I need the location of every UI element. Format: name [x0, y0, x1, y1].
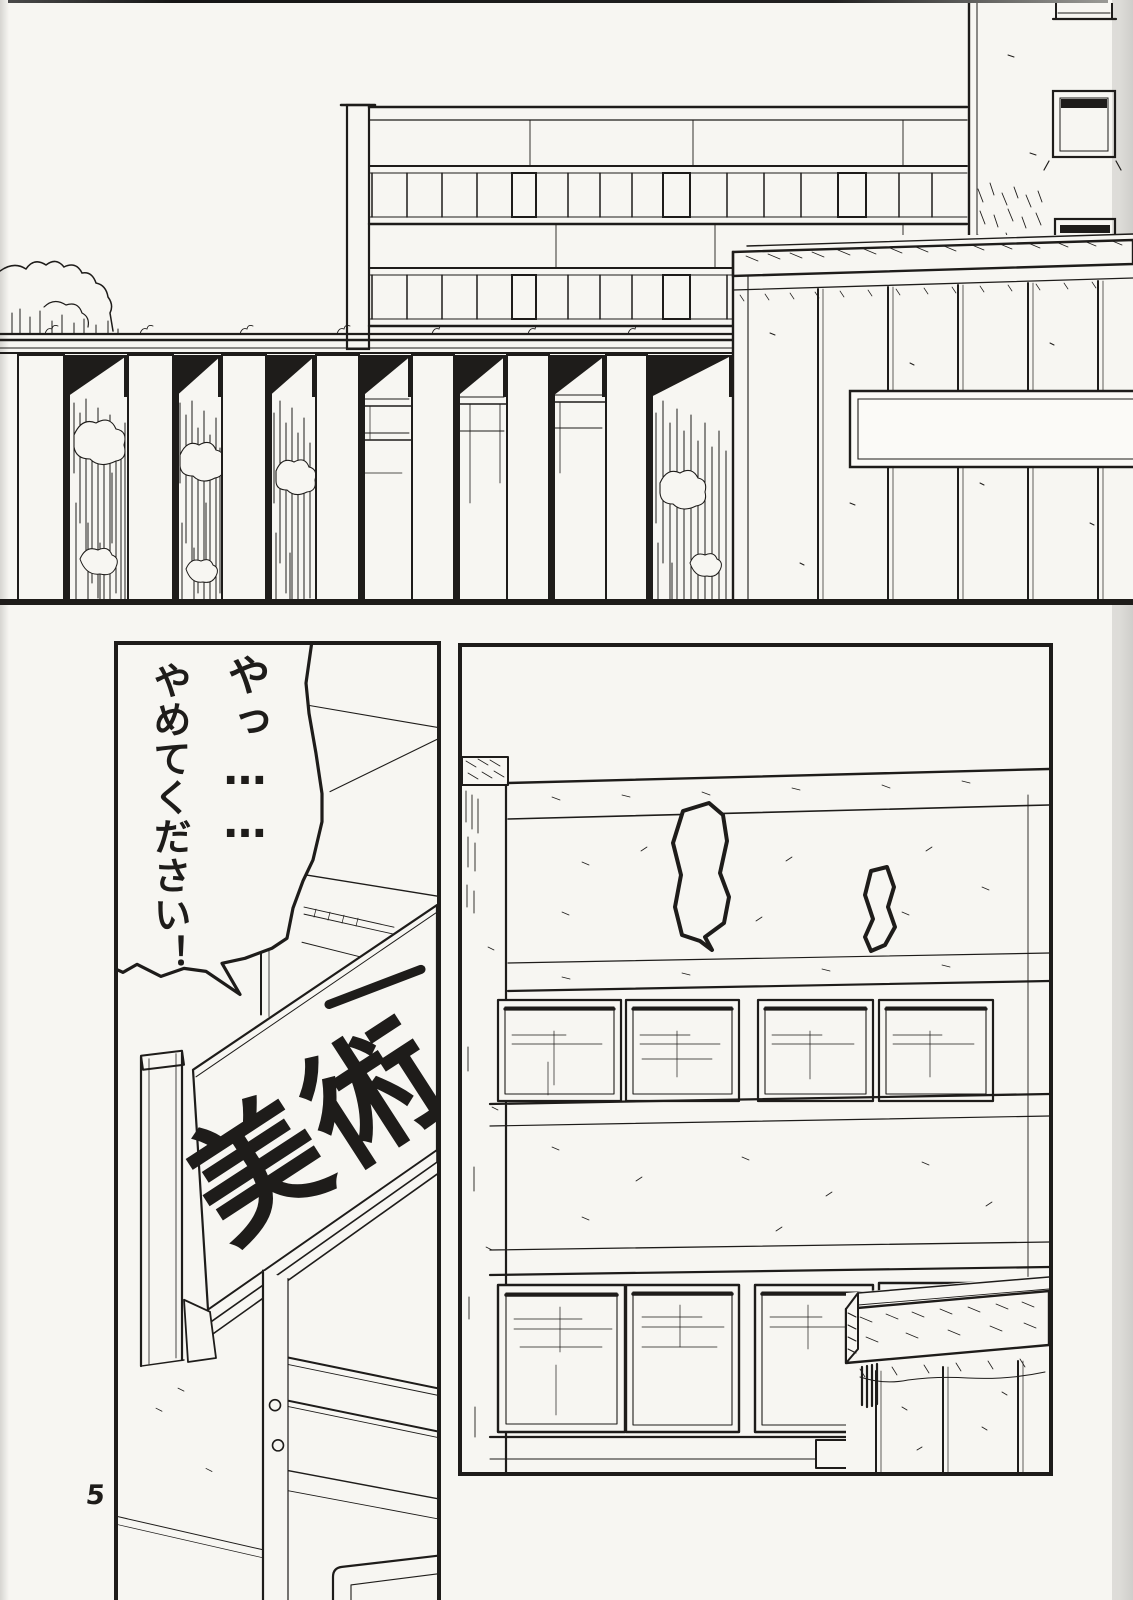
panel-top-art: [0, 3, 1133, 609]
falling-object-large: [673, 803, 729, 950]
art-room-sign: 美術: [162, 905, 437, 1362]
bolt: [273, 1440, 284, 1451]
manga-page: { "page_number": "5", "speech_bubble": {…: [0, 0, 1133, 1600]
wooden-gate: [733, 234, 1133, 601]
panel-right-building-facade: [458, 643, 1053, 1476]
panel-top-establishing-shot: [0, 3, 1133, 609]
window-row-1: [498, 1000, 993, 1101]
bush-outline: [0, 261, 113, 331]
blank-signboard: [850, 391, 1133, 467]
bolt: [270, 1400, 281, 1411]
window-frame-corner: [333, 1556, 437, 1600]
panel-left-sign-scene: 美術 やっ…… やめてください！: [114, 641, 441, 1600]
speech-bubble-line-1: やっ……: [214, 653, 276, 851]
speech-bubble-line-2: やめてください！: [142, 661, 197, 973]
page-number: 5: [84, 1480, 107, 1511]
falling-object-small: [865, 867, 895, 951]
panel-right-art: [462, 647, 1049, 1472]
front-pillar: [141, 1051, 184, 1366]
foreground-fence: [846, 1275, 1049, 1472]
corner-post: [263, 1271, 288, 1600]
